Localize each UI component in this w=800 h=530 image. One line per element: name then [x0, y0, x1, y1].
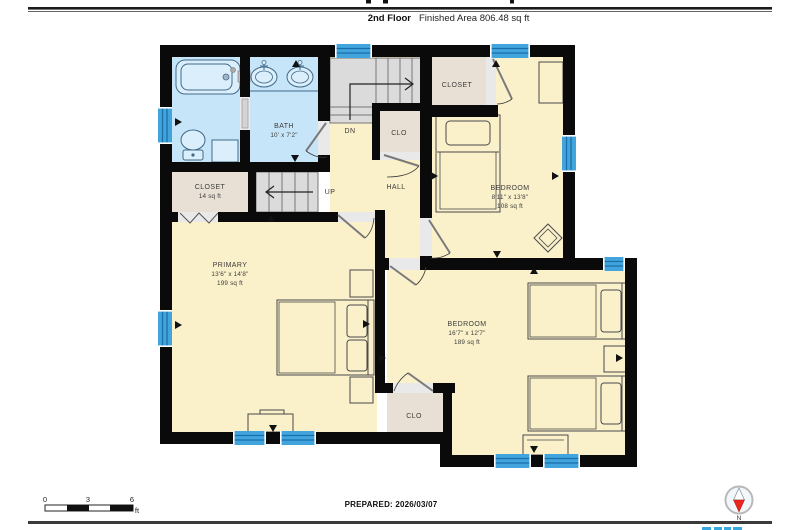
nightstand [350, 377, 373, 403]
floor-plan-page: 2nd Floor Finished Area 806.48 sq ft [0, 0, 800, 530]
room-label-primary: PRIMARY [213, 262, 248, 269]
room-label-bath: BATH [274, 123, 294, 130]
footer: 0 3 6 ft PREPARED: 2026/03/07 N [28, 487, 772, 530]
tub-faucet [231, 68, 236, 73]
queen-bed [277, 300, 374, 375]
stairs-down-label: DN [345, 128, 356, 135]
scale-unit: ft [135, 506, 140, 515]
compass-n-label: N [737, 515, 742, 522]
bathtub [176, 60, 250, 94]
compass: N [726, 487, 753, 523]
staircase-up: UP [256, 172, 335, 212]
window [233, 431, 266, 445]
window [158, 107, 172, 144]
nightstand [604, 346, 627, 372]
nightstand [350, 270, 373, 297]
room-area-closet-left: 14 sq ft [199, 193, 221, 200]
room-area-primary: 199 sq ft [217, 280, 243, 287]
room-dims-bedroom-upper: 8'11" x 13'8" [492, 194, 529, 201]
room-label-clo-mid: CLO [391, 130, 407, 137]
stairs-up-label: UP [325, 189, 336, 196]
closet-upper-floor [432, 57, 486, 105]
header: 2nd Floor Finished Area 806.48 sq ft [28, 0, 772, 24]
floor-plan-canvas: 2nd Floor Finished Area 806.48 sq ft [0, 0, 800, 530]
tub-room-door [242, 99, 248, 128]
bath-cabinet [212, 140, 238, 162]
window [562, 135, 576, 172]
room-label-bedroom-lower: BEDROOM [448, 321, 487, 328]
twin-bed-1 [528, 283, 627, 339]
room-label-hall: HALL [386, 184, 405, 191]
window [158, 310, 172, 347]
room-dims-bedroom-lower: 16'7" x 12'7" [448, 330, 485, 337]
window [494, 454, 531, 468]
room-label-closet-upper: CLOSET [442, 82, 473, 89]
twin-bed-2 [528, 376, 627, 431]
prepared-date: PREPARED: 2026/03/07 [345, 500, 438, 509]
header-rule-thin [28, 11, 772, 12]
dresser-lower [523, 435, 568, 455]
finished-area-label: Finished Area 806.48 sq ft [419, 13, 530, 24]
window [335, 44, 372, 58]
toilet [181, 130, 205, 160]
window [603, 257, 625, 271]
window [490, 44, 530, 58]
twin-bed-upper [436, 115, 500, 212]
room-dims-primary: 13'6" x 14'8" [211, 271, 248, 278]
room-label-closet-left: CLOSET [195, 184, 226, 191]
room-area-bedroom-lower: 189 sq ft [454, 339, 480, 346]
window [543, 454, 580, 468]
header-rule-thick [28, 7, 772, 10]
floor-label: 2nd Floor [368, 13, 412, 24]
scale-tick-0: 0 [43, 495, 47, 504]
desk [539, 62, 563, 103]
closet-left-floor [172, 172, 248, 212]
room-area-bedroom-upper: 108 sq ft [497, 203, 523, 210]
room-label-bedroom-upper: BEDROOM [491, 185, 530, 192]
clipped-title-fragment [366, 0, 514, 4]
scale-tick-6: 6 [130, 495, 134, 504]
room-dims-bath: 10' x 7'2" [270, 132, 297, 139]
scale-bar: 0 3 6 ft [43, 495, 140, 515]
scale-tick-3: 3 [86, 495, 90, 504]
window [280, 431, 316, 445]
footer-rule [28, 521, 772, 524]
room-label-clo-lower: CLO [406, 413, 422, 420]
